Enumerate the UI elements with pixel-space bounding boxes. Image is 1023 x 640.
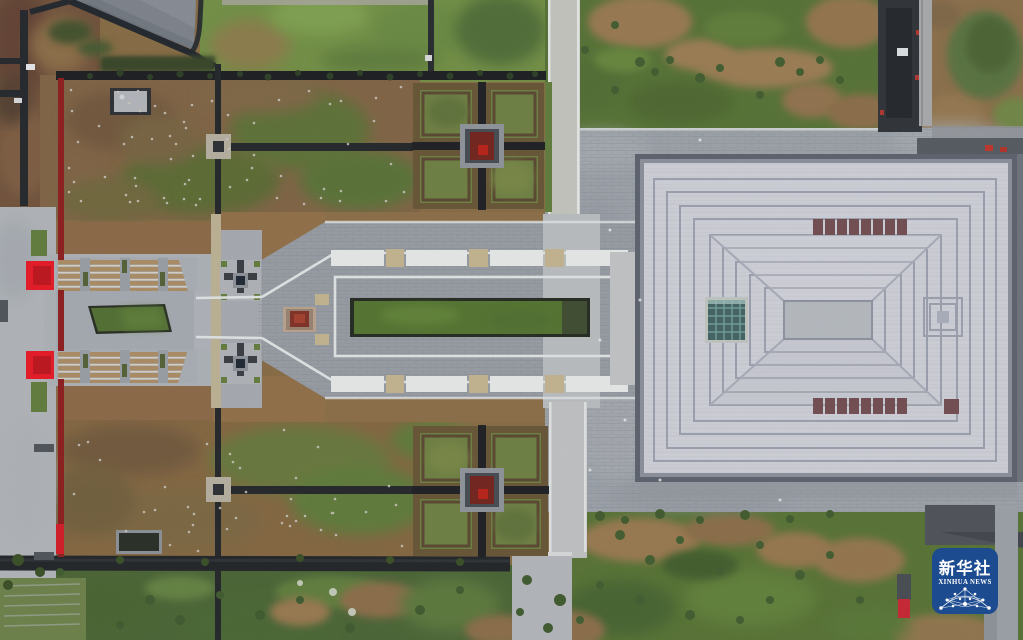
svg-text:XINHUA NEWS: XINHUA NEWS	[938, 579, 991, 586]
svg-text:新华社: 新华社	[939, 558, 992, 578]
